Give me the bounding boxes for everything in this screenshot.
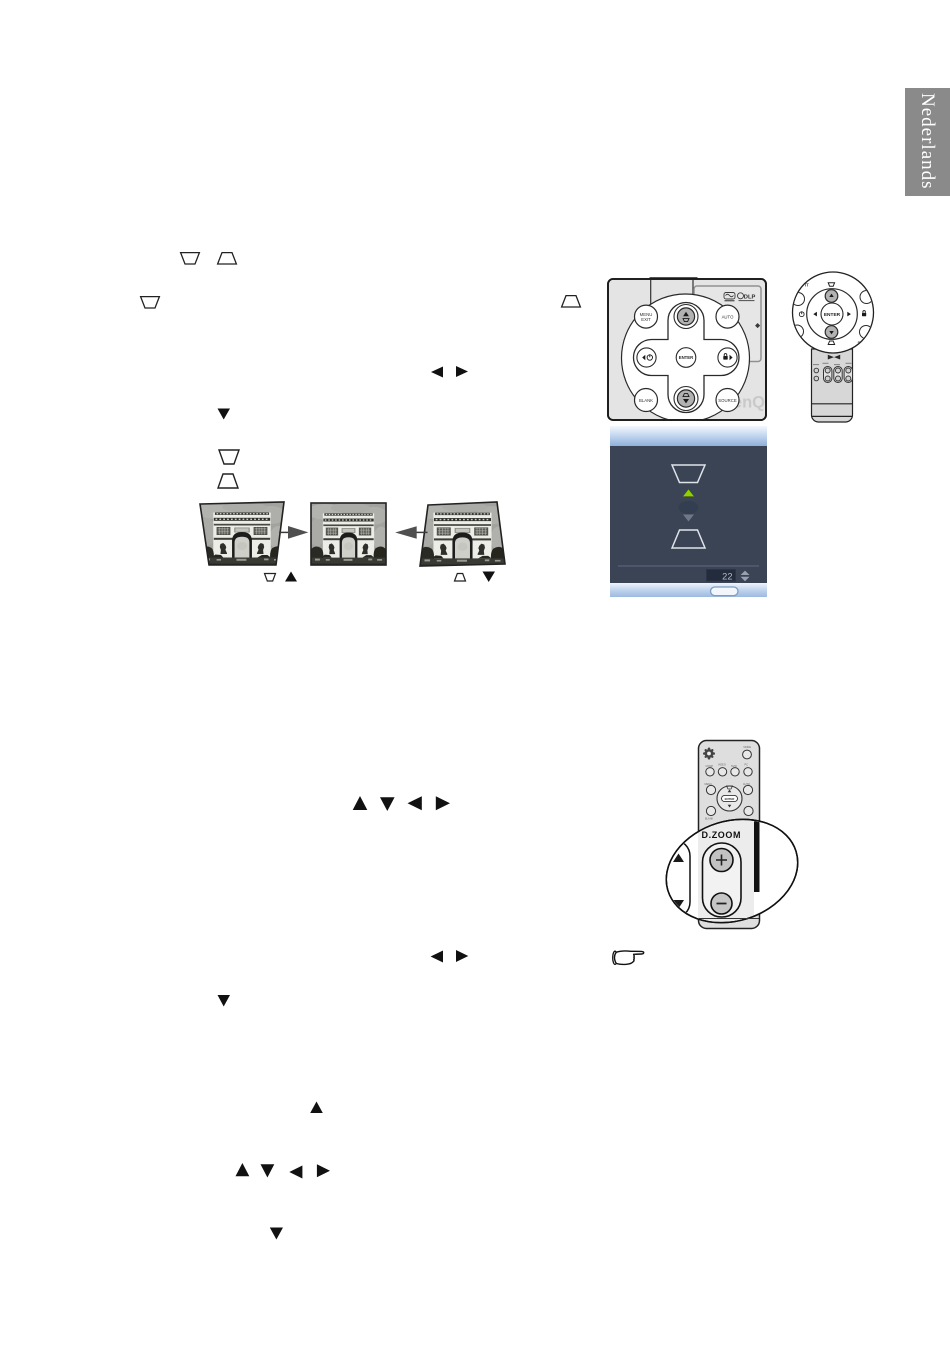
svg-text:BLANK: BLANK — [639, 398, 653, 403]
svg-text:DLP: DLP — [744, 294, 756, 300]
svg-text:BLANK: BLANK — [705, 818, 714, 821]
svg-text:ENTER: ENTER — [679, 355, 694, 360]
svg-text:ENTER: ENTER — [824, 312, 841, 318]
svg-text:MODE: MODE — [744, 746, 752, 749]
svg-text:ENTER: ENTER — [725, 797, 736, 801]
svg-text:VIDEO: VIDEO — [718, 763, 726, 766]
svg-text:PC: PC — [745, 763, 749, 766]
svg-text:D.ZOOM: D.ZOOM — [702, 830, 742, 840]
svg-text:SOURCE: SOURCE — [718, 398, 737, 403]
svg-text:AUTO: AUTO — [722, 314, 735, 319]
svg-text:EXIT: EXIT — [641, 317, 651, 322]
svg-text:22: 22 — [722, 571, 732, 581]
